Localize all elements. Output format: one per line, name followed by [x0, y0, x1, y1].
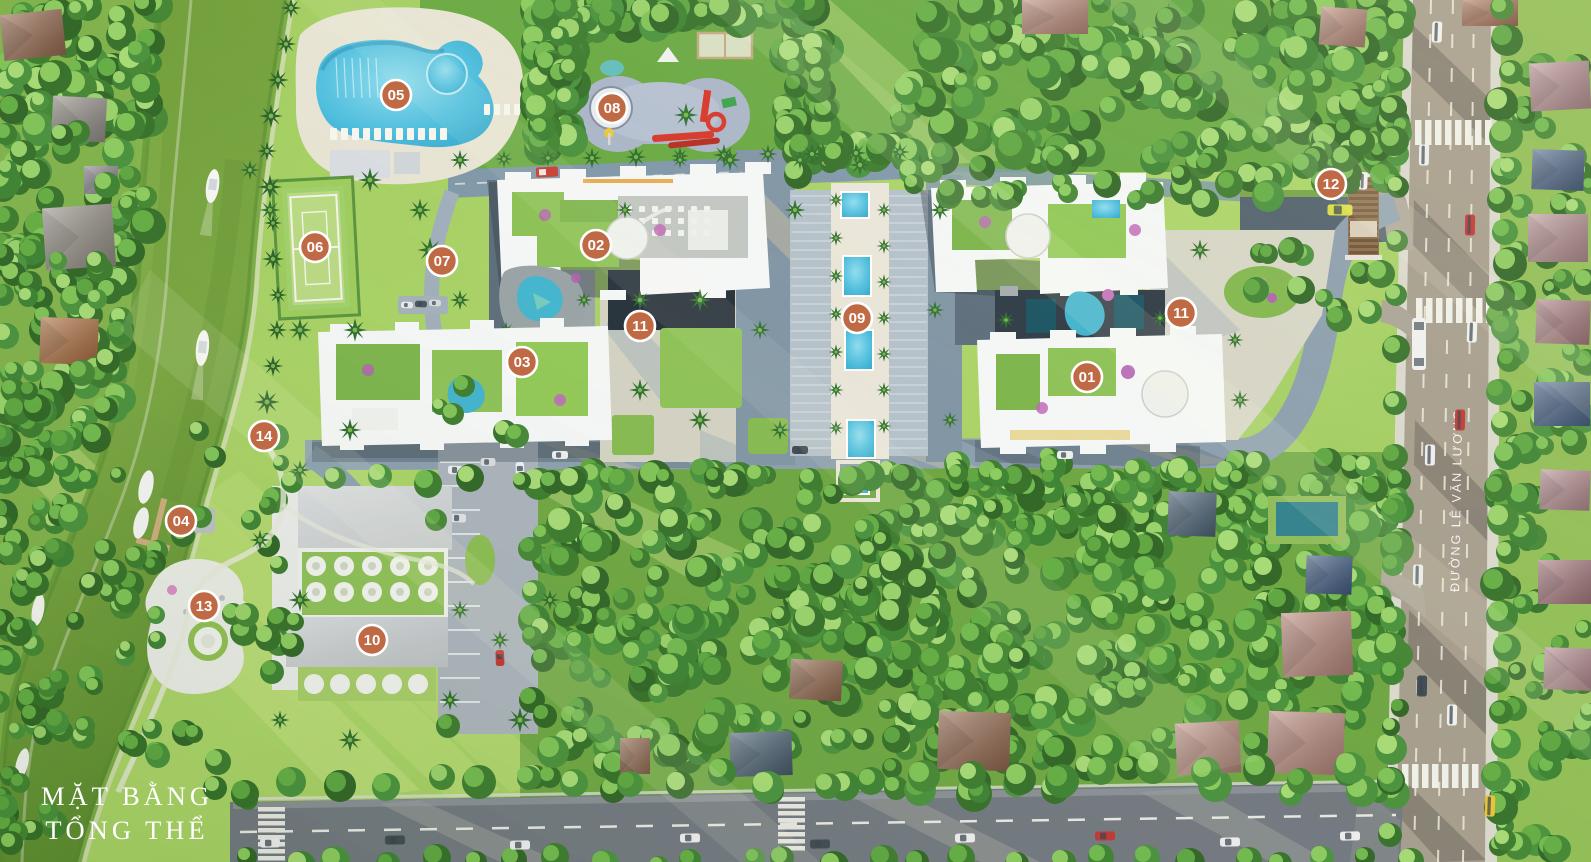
svg-text:09: 09: [849, 310, 866, 327]
svg-text:06: 06: [307, 239, 324, 256]
svg-text:04: 04: [173, 513, 190, 530]
svg-text:01: 01: [1079, 369, 1096, 386]
svg-text:11: 11: [632, 318, 648, 335]
svg-text:12: 12: [1323, 176, 1340, 193]
svg-text:07: 07: [434, 253, 451, 270]
svg-text:13: 13: [196, 598, 213, 615]
svg-text:MẶT BẰNG: MẶT BẰNG: [41, 780, 213, 811]
svg-text:05: 05: [388, 87, 405, 104]
svg-text:08: 08: [604, 100, 621, 117]
svg-text:10: 10: [364, 632, 381, 649]
svg-text:03: 03: [514, 354, 531, 371]
svg-text:TỔNG THỂ: TỔNG THỂ: [45, 814, 208, 845]
svg-text:02: 02: [588, 237, 605, 254]
svg-text:14: 14: [256, 428, 273, 445]
svg-text:11: 11: [1173, 305, 1189, 322]
